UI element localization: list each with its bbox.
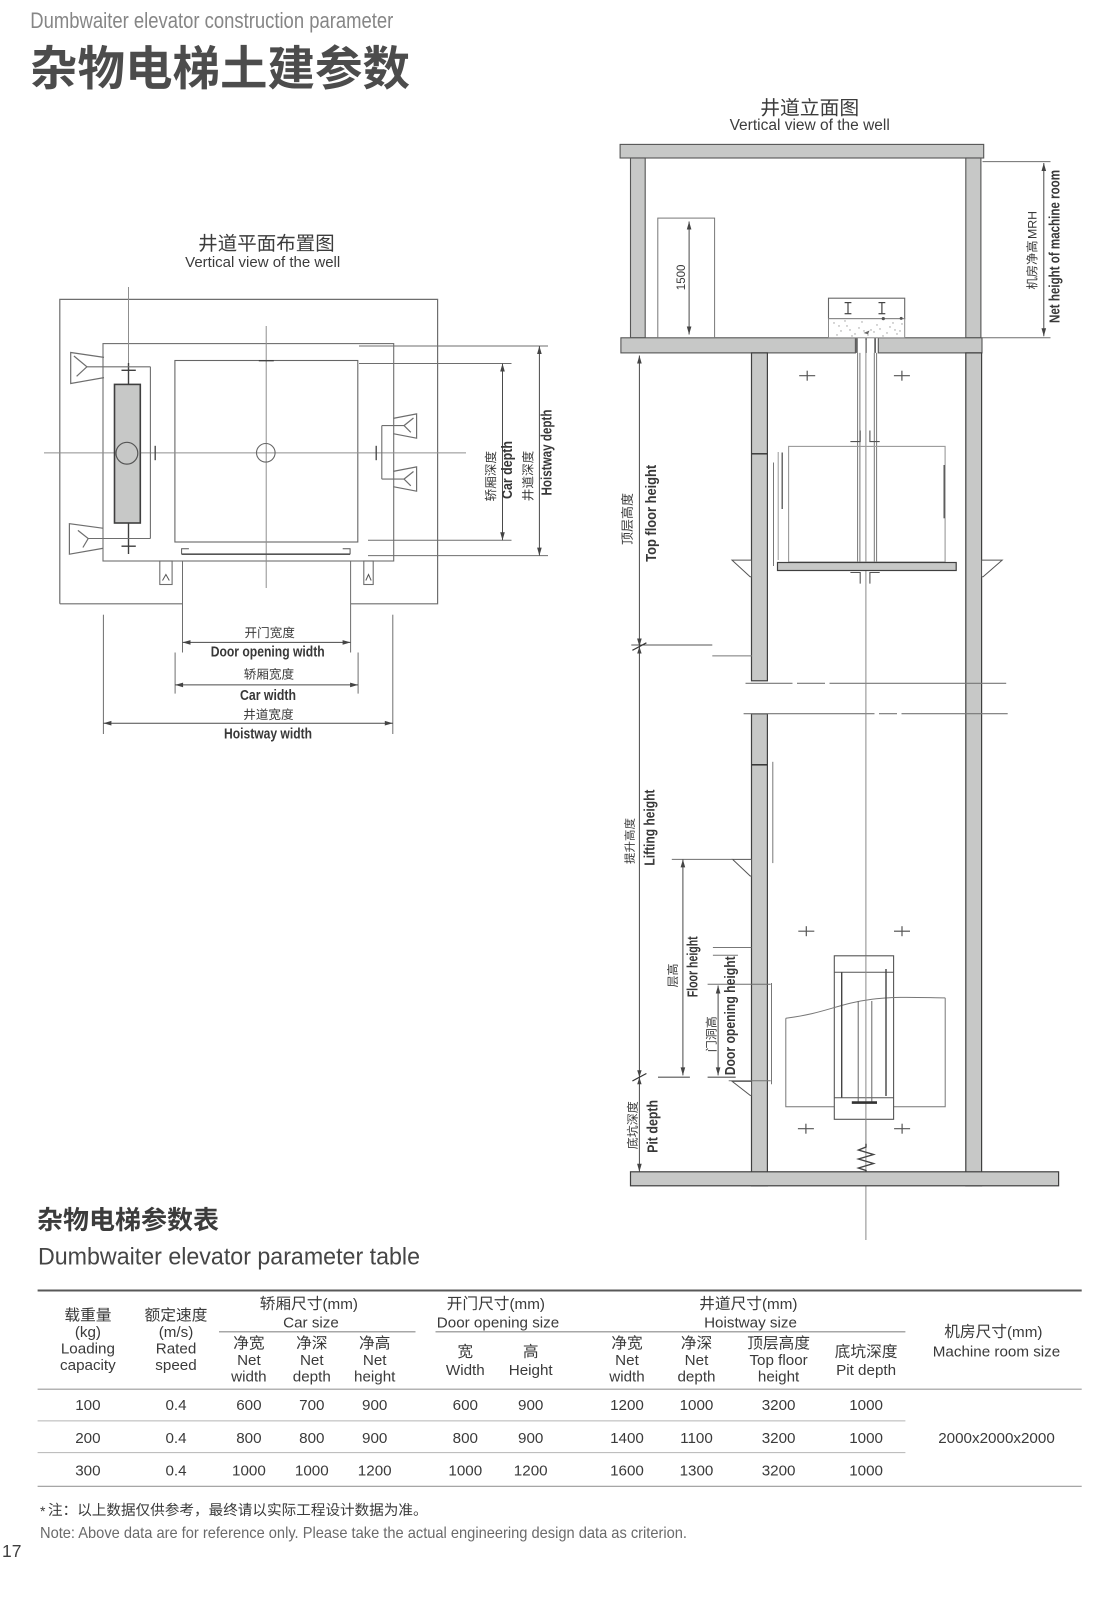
svg-text:Lifting height: Lifting height [643, 789, 659, 865]
svg-text:1400: 1400 [610, 1430, 644, 1447]
svg-text:capacity: capacity [60, 1357, 116, 1374]
svg-text:Net: Net [615, 1352, 639, 1369]
svg-text:Floor height: Floor height [685, 936, 701, 997]
svg-text:(mm): (mm) [322, 1296, 357, 1313]
svg-text:Width: Width [446, 1362, 485, 1379]
svg-text:Dumbwaiter elevator parameter: Dumbwaiter elevator parameter table [38, 1244, 420, 1271]
svg-text:width: width [608, 1369, 644, 1386]
svg-text:(mm): (mm) [762, 1296, 797, 1313]
svg-text:Net: Net [685, 1352, 709, 1369]
svg-text:900: 900 [362, 1397, 387, 1414]
svg-text:speed: speed [155, 1357, 196, 1374]
svg-text:2000x2000x2000: 2000x2000x2000 [938, 1430, 1055, 1447]
svg-text:Top floor height: Top floor height [644, 465, 660, 562]
svg-text:Door opening size: Door opening size [437, 1315, 559, 1332]
svg-text:Height: Height [509, 1362, 554, 1379]
svg-text:height: height [758, 1369, 800, 1386]
svg-text:3200: 3200 [762, 1463, 796, 1480]
svg-text:Net: Net [363, 1352, 387, 1369]
svg-text:1000: 1000 [849, 1430, 883, 1447]
svg-text:Car depth: Car depth [500, 441, 516, 499]
svg-text:Rated: Rated [156, 1341, 197, 1358]
svg-text:3200: 3200 [762, 1397, 796, 1414]
svg-text:Loading: Loading [61, 1341, 115, 1358]
svg-text:900: 900 [518, 1397, 543, 1414]
svg-text:1000: 1000 [849, 1397, 883, 1414]
svg-text:Top floor: Top floor [749, 1352, 807, 1369]
svg-text:100: 100 [75, 1397, 100, 1414]
svg-text:Hoistway size: Hoistway size [704, 1315, 797, 1332]
svg-text:(mm): (mm) [509, 1296, 544, 1313]
svg-text:1200: 1200 [514, 1463, 548, 1480]
svg-text:Pit depth: Pit depth [836, 1362, 896, 1379]
svg-text:700: 700 [299, 1397, 324, 1414]
svg-text:Car width: Car width [240, 688, 296, 704]
svg-text:Net: Net [237, 1352, 261, 1369]
svg-text:Hoistway width: Hoistway width [224, 727, 312, 743]
svg-text:600: 600 [453, 1397, 478, 1414]
svg-text:Vertical view of the well: Vertical view of the well [185, 254, 340, 271]
svg-text:width: width [230, 1369, 266, 1386]
svg-text:1300: 1300 [680, 1463, 714, 1480]
svg-text:900: 900 [518, 1430, 543, 1447]
svg-text:Car size: Car size [283, 1315, 339, 1332]
svg-text:1000: 1000 [295, 1463, 329, 1480]
svg-text:Dumbwaiter elevator constructi: Dumbwaiter elevator construction paramet… [30, 8, 393, 33]
svg-text:1200: 1200 [610, 1397, 644, 1414]
svg-text:*: * [40, 1503, 46, 1519]
svg-text:1000: 1000 [849, 1463, 883, 1480]
svg-text:0.4: 0.4 [165, 1463, 186, 1480]
svg-text:(m/s): (m/s) [159, 1324, 194, 1341]
svg-text:Hoistway depth: Hoistway depth [540, 410, 556, 496]
svg-text:300: 300 [75, 1463, 100, 1480]
svg-text:17: 17 [2, 1541, 21, 1561]
svg-text:900: 900 [362, 1430, 387, 1447]
svg-text:Note: Above data are for refer: Note: Above data are for reference only.… [40, 1525, 687, 1542]
svg-text:Door opening width: Door opening width [211, 644, 325, 660]
svg-text:1000: 1000 [680, 1397, 714, 1414]
svg-text:0.4: 0.4 [165, 1397, 186, 1414]
svg-text:(mm): (mm) [1007, 1324, 1042, 1341]
svg-text:1600: 1600 [610, 1463, 644, 1480]
svg-text:800: 800 [299, 1430, 324, 1447]
svg-text:depth: depth [293, 1369, 331, 1386]
svg-text:Pit depth: Pit depth [646, 1100, 662, 1153]
svg-text:Door opening height: Door opening height [723, 956, 739, 1075]
svg-text:height: height [354, 1369, 396, 1386]
svg-text:(kg): (kg) [75, 1324, 101, 1341]
svg-text:1000: 1000 [448, 1463, 482, 1480]
svg-text:1000: 1000 [232, 1463, 266, 1480]
svg-text:MRH: MRH [1025, 211, 1039, 239]
svg-text:Net: Net [300, 1352, 324, 1369]
svg-text:800: 800 [236, 1430, 261, 1447]
svg-text:800: 800 [453, 1430, 478, 1447]
svg-text:1100: 1100 [680, 1430, 713, 1447]
svg-text:1500: 1500 [676, 265, 688, 291]
svg-text:Machine room size: Machine room size [933, 1344, 1060, 1361]
svg-text:0.4: 0.4 [165, 1430, 186, 1447]
svg-text:3200: 3200 [762, 1430, 796, 1447]
svg-text:200: 200 [75, 1430, 100, 1447]
svg-text:600: 600 [236, 1397, 261, 1414]
svg-text:Net height of machine room: Net height of machine room [1048, 170, 1064, 323]
svg-text:Vertical view of the well: Vertical view of the well [730, 117, 890, 134]
svg-text:depth: depth [677, 1369, 715, 1386]
svg-text:1200: 1200 [358, 1463, 392, 1480]
